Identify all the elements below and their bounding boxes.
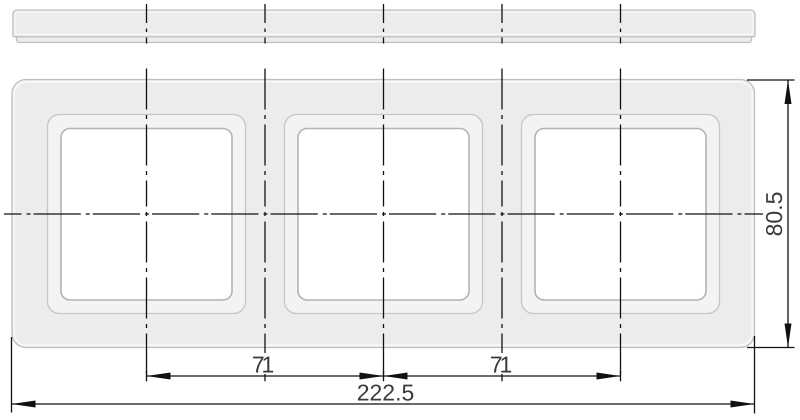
svg-text:71: 71	[252, 352, 274, 378]
svg-text:71: 71	[490, 352, 512, 378]
svg-text:80.5: 80.5	[761, 192, 787, 237]
svg-text:222.5: 222.5	[357, 380, 415, 406]
